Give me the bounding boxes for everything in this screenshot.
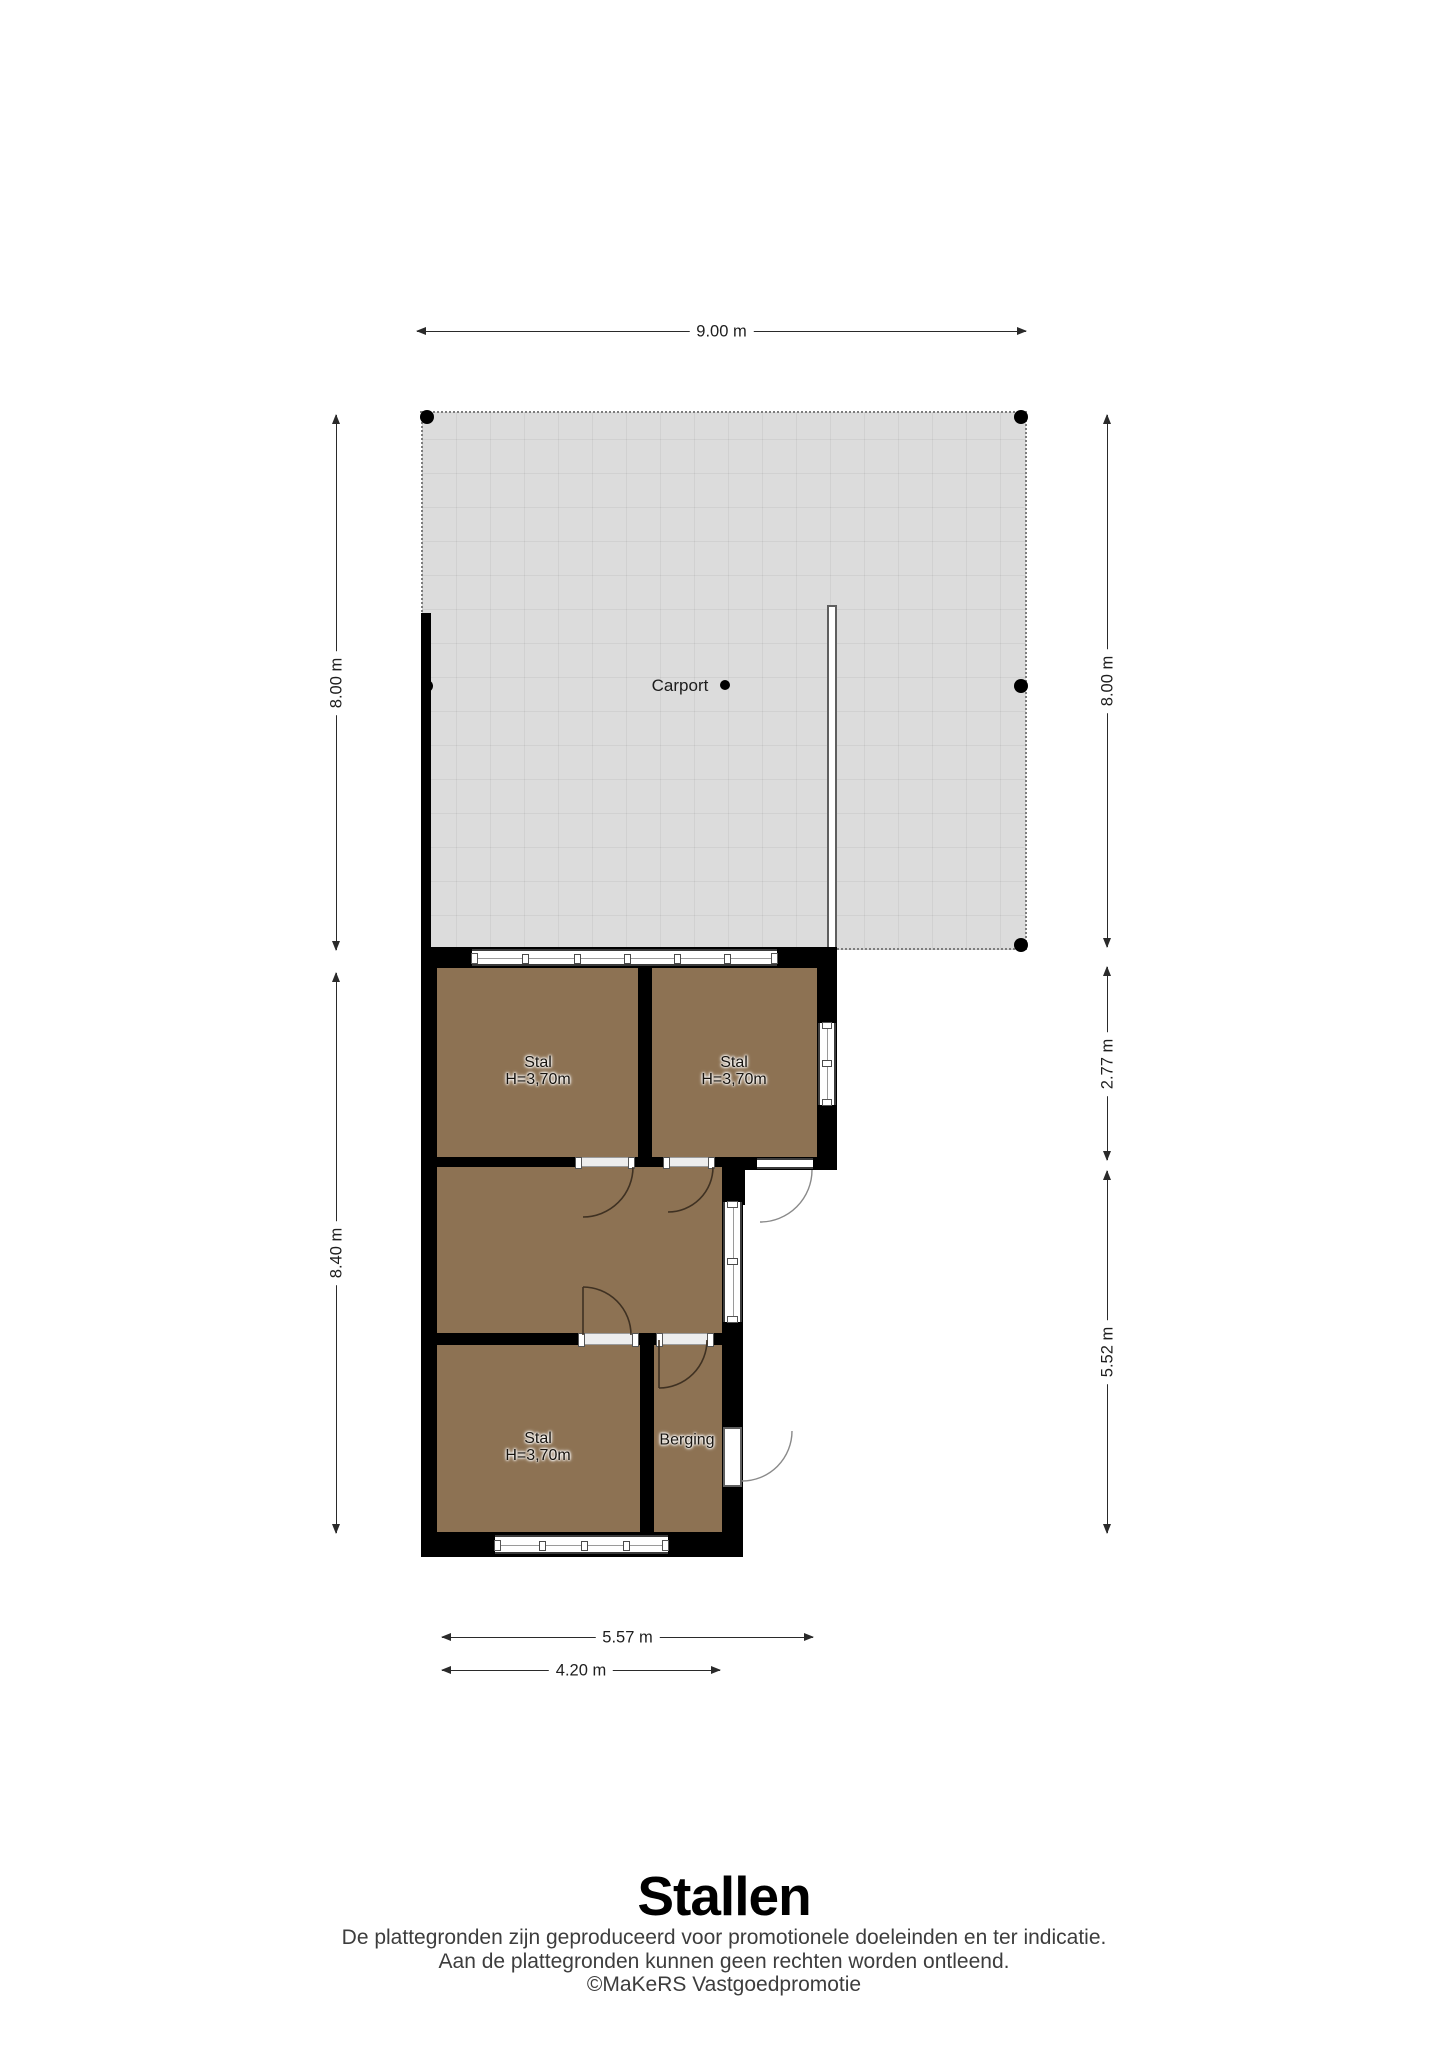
disclaimer-line: De plattegronden zijn geproduceerd voor …: [0, 1926, 1448, 1950]
window-mullion: [724, 954, 731, 964]
arrow-down-icon: [332, 1524, 340, 1534]
window-right-middle: [723, 1202, 742, 1322]
arrow-right-icon: [711, 1666, 721, 1674]
window-jamb: [727, 1201, 738, 1208]
window-mullion: [623, 1541, 630, 1551]
room-name: Berging: [659, 1432, 714, 1449]
window-jamb: [662, 1540, 669, 1551]
exterior-door-jog: [757, 1158, 813, 1169]
room-ceiling-height: H=3,70m: [505, 1071, 570, 1088]
door-jamb: [656, 1333, 663, 1347]
exterior-door-berging-leaf: [723, 1427, 742, 1487]
arrow-up-icon: [332, 972, 340, 982]
window-jamb: [727, 1316, 738, 1323]
window-mullion: [822, 1060, 832, 1067]
door-threshold-stal2: [665, 1157, 713, 1167]
wall-stal-divider-bottom: [640, 1345, 654, 1535]
door-arc-exterior-jog: [760, 1170, 812, 1222]
wall-left: [421, 947, 437, 1557]
arrow-left-icon: [416, 327, 426, 335]
door-jamb: [708, 1157, 715, 1169]
window-mullion: [581, 1541, 588, 1551]
arrow-left-icon: [441, 1666, 451, 1674]
arrow-left-icon: [441, 1633, 451, 1641]
door-jamb: [575, 1157, 582, 1169]
window-mullion: [574, 954, 581, 964]
door-jamb: [628, 1157, 635, 1169]
disclaimer-line: ©MaKeRS Vastgoedpromotie: [0, 1973, 1448, 1997]
disclaimer-line: Aan de plattegronden kunnen geen rechten…: [0, 1950, 1448, 1974]
door-threshold-berging: [658, 1333, 712, 1345]
dimension-label: 2.77 m: [1099, 1031, 1118, 1095]
dimension-carport-height-left: 8.00 m: [336, 415, 337, 950]
door-jamb: [578, 1333, 585, 1347]
window-mullion: [624, 954, 631, 964]
dimension-bottom-width-inner: 4.20 m: [442, 1670, 720, 1671]
room-name: Stal: [505, 1054, 570, 1071]
window-jamb: [822, 1022, 832, 1029]
door-jamb: [663, 1157, 670, 1169]
room-ceiling-height: H=3,70m: [505, 1447, 570, 1464]
window-mullion: [727, 1258, 738, 1265]
dimension-carport-width: 9.00 m: [417, 331, 1026, 332]
window-jamb: [494, 1540, 501, 1551]
carport-post: [1014, 679, 1028, 693]
room-label-berging: Berging: [659, 1432, 714, 1449]
dimension-label: 8.00 m: [1099, 649, 1118, 713]
arrow-down-icon: [1103, 938, 1111, 948]
room-name: Stal: [701, 1054, 766, 1071]
dimension-label: 5.52 m: [1099, 1320, 1118, 1384]
door-arc-exterior-berging: [742, 1431, 792, 1481]
carport-post: [1014, 410, 1028, 424]
arrow-down-icon: [1103, 1524, 1111, 1534]
window-right-stal: [818, 1023, 836, 1105]
window-jamb: [771, 953, 778, 964]
floorplan-page: Carport: [0, 0, 1448, 2048]
door-jamb: [632, 1333, 639, 1347]
arrow-up-icon: [1103, 414, 1111, 424]
carport-west-wall: [421, 613, 431, 950]
room-fill-lower: [431, 1160, 727, 1538]
window-mullion: [674, 954, 681, 964]
dimension-bottom-section-right: 5.52 m: [1107, 1171, 1108, 1533]
carport-inner-wall: [827, 605, 837, 950]
window-mullion: [522, 954, 529, 964]
arrow-down-icon: [332, 941, 340, 951]
disclaimer-text: De plattegronden zijn geproduceerd voor …: [0, 1926, 1448, 1997]
door-threshold-stal1: [577, 1157, 633, 1167]
dimension-top-section-right: 2.77 m: [1107, 967, 1108, 1160]
carport-border-left: [421, 411, 423, 615]
dimension-bottom-width-outer: 5.57 m: [442, 1637, 813, 1638]
arrow-up-icon: [1103, 1170, 1111, 1180]
dimension-label: 8.00 m: [328, 650, 347, 714]
arrow-down-icon: [1103, 1151, 1111, 1161]
dimension-building-height-left: 8.40 m: [336, 973, 337, 1533]
plan-title: Stallen: [0, 1864, 1448, 1928]
arrow-up-icon: [1103, 966, 1111, 976]
room-label-stal2: Stal H=3,70m: [701, 1054, 766, 1088]
room-label-stal1: Stal H=3,70m: [505, 1054, 570, 1088]
carport-post: [420, 410, 434, 424]
dimension-carport-height-right: 8.00 m: [1107, 415, 1108, 947]
door-jamb: [707, 1333, 714, 1347]
dimension-label: 8.40 m: [328, 1221, 347, 1285]
window-band-bottom: [495, 1535, 668, 1554]
dimension-label: 4.20 m: [549, 1662, 613, 1681]
window-jamb: [471, 953, 478, 964]
arrow-right-icon: [804, 1633, 814, 1641]
room-ceiling-height: H=3,70m: [701, 1071, 766, 1088]
room-label-stal3: Stal H=3,70m: [505, 1430, 570, 1464]
window-mullion: [539, 1541, 546, 1551]
door-threshold-stal3: [580, 1333, 637, 1345]
room-name: Stal: [505, 1430, 570, 1447]
arrow-up-icon: [332, 414, 340, 424]
dimension-label: 5.57 m: [595, 1629, 659, 1648]
carport-border-top: [420, 411, 1027, 413]
dimension-label: 9.00 m: [689, 323, 753, 342]
window-band-top: [472, 949, 777, 966]
carport-center-post: [720, 680, 730, 690]
wall-stal-divider-top: [638, 966, 652, 1167]
carport-border-bottom: [837, 948, 1027, 950]
room-label-carport: Carport: [652, 676, 709, 696]
arrow-right-icon: [1017, 327, 1027, 335]
window-jamb: [822, 1099, 832, 1106]
carport-post: [1014, 938, 1028, 952]
